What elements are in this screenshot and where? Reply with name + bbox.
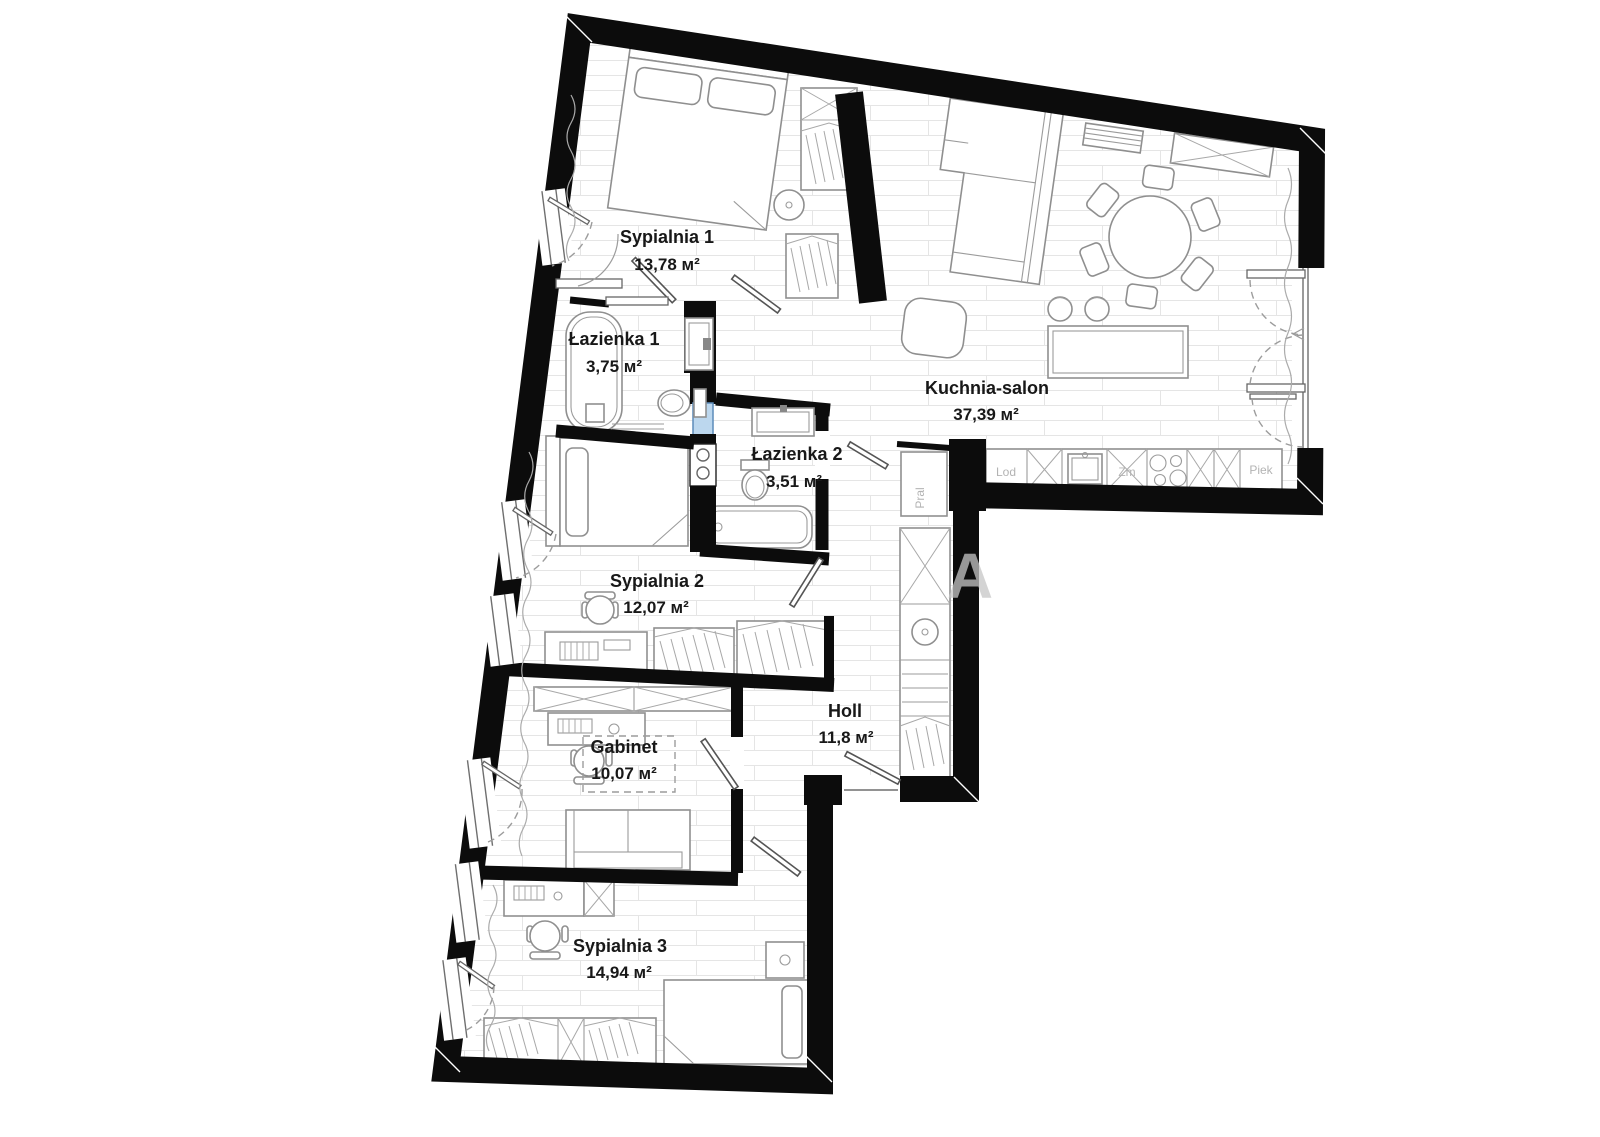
area-bedroom3: 14,94 м² <box>586 963 652 982</box>
label-kitchen: Kuchnia-salon <box>925 378 1049 398</box>
apartment-floor <box>446 28 1312 1081</box>
pillow <box>566 448 588 536</box>
wall-bath2-left <box>690 486 716 552</box>
wall-bath2-bottom <box>700 550 829 559</box>
area-bath1: 3,75 м² <box>586 357 642 376</box>
area-bath2: 3,51 м² <box>766 472 822 491</box>
pipe <box>697 449 709 461</box>
wardrobe <box>584 880 614 916</box>
dishwasher-label: Zm <box>1118 465 1135 479</box>
wall-bedroom3-top <box>458 872 738 879</box>
faucet <box>703 338 711 350</box>
round-rug <box>774 190 804 220</box>
wall-stub <box>824 616 834 682</box>
area-office: 10,07 м² <box>591 764 657 783</box>
faucet <box>780 405 787 412</box>
wardrobe-row <box>534 687 734 711</box>
oven-label: Piek <box>1249 463 1273 477</box>
wall-washer-niche <box>897 444 950 448</box>
wall-kitchen-hall-block <box>949 439 986 511</box>
label-bedroom1: Sypialnia 1 <box>620 227 714 247</box>
balcony-door-leaf <box>1247 270 1305 278</box>
washing-machine: Pral <box>901 452 947 516</box>
pipe <box>697 467 709 479</box>
area-bedroom2: 12,07 м² <box>623 598 689 617</box>
washer-label: Pral <box>913 487 927 508</box>
watermark: A <box>947 540 993 612</box>
floor-plan-page: Pral Sypialnia 1 13,78 м² Łazienka 1 3,7… <box>0 0 1600 1137</box>
label-bedroom3: Sypialnia 3 <box>573 936 667 956</box>
pillow <box>782 986 802 1058</box>
pouf <box>900 296 968 359</box>
area-bedroom1: 13,78 м² <box>634 255 700 274</box>
wall-bath1-top <box>570 300 609 304</box>
floor-plan: Pral Sypialnia 1 13,78 м² Łazienka 1 3,7… <box>0 0 1600 1137</box>
label-bath1: Łazienka 1 <box>568 329 659 349</box>
wardrobe <box>786 234 838 298</box>
bathtub <box>704 506 812 548</box>
nightstand <box>766 942 804 978</box>
hall-wardrobe-column <box>900 528 950 778</box>
label-office: Gabinet <box>590 737 657 757</box>
toilet-tank <box>694 389 706 417</box>
mirror <box>912 619 938 645</box>
wall-entrance-left <box>804 775 842 805</box>
label-bedroom2: Sypialnia 2 <box>610 571 704 591</box>
wardrobe <box>737 621 827 681</box>
area-kitchen: 37,39 м² <box>953 405 1019 424</box>
label-hall: Holl <box>828 701 862 721</box>
area-hall: 11,8 м² <box>818 728 873 747</box>
tub-drain <box>586 404 604 422</box>
balcony-door-leaf <box>1247 384 1305 392</box>
fridge-label: Lod <box>996 465 1016 479</box>
label-bath2: Łazienka 2 <box>751 444 842 464</box>
sofa <box>566 810 690 870</box>
